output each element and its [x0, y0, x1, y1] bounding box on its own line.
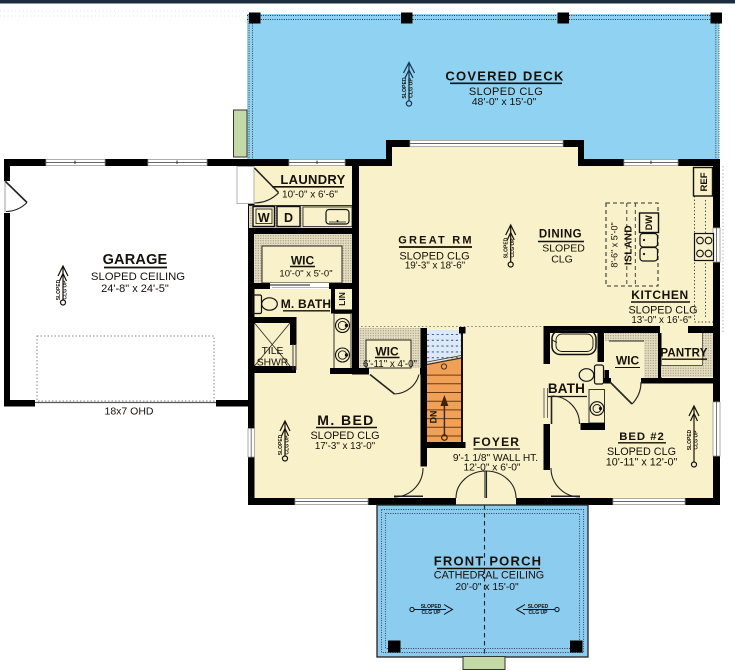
svg-text:REF: REF — [699, 172, 710, 191]
svg-text:M. BATH: M. BATH — [281, 297, 332, 311]
svg-text:10'-0" x 5'-0": 10'-0" x 5'-0" — [279, 269, 332, 280]
svg-text:WIC: WIC — [375, 345, 399, 359]
svg-text:CLG UP: CLG UP — [409, 78, 415, 98]
svg-text:CLG UP: CLG UP — [529, 610, 549, 616]
svg-text:WIC: WIC — [291, 254, 315, 268]
svg-text:COVERED DECK: COVERED DECK — [445, 69, 564, 84]
svg-text:17'-3" x 13'-0": 17'-3" x 13'-0" — [315, 441, 376, 452]
svg-text:TILE: TILE — [262, 346, 284, 357]
svg-text:13'-0" x 16'-6": 13'-0" x 16'-6" — [631, 315, 692, 326]
svg-text:CLG UP: CLG UP — [694, 430, 700, 450]
svg-text:M. BED: M. BED — [317, 412, 374, 428]
svg-text:19'-3" x 18'-6": 19'-3" x 18'-6" — [405, 261, 466, 272]
svg-text:W: W — [258, 211, 270, 225]
svg-text:SLOPED: SLOPED — [278, 434, 284, 455]
svg-text:SLOPED CEILING: SLOPED CEILING — [91, 271, 185, 283]
svg-text:FOYER: FOYER — [473, 435, 520, 449]
svg-text:SLOPED: SLOPED — [687, 429, 693, 450]
svg-text:CLG UP: CLG UP — [510, 238, 516, 258]
svg-text:WIC: WIC — [616, 354, 640, 368]
svg-text:KITCHEN: KITCHEN — [631, 288, 689, 302]
svg-text:DINING: DINING — [539, 229, 582, 241]
svg-text:8'-6" x 5'-0": 8'-6" x 5'-0" — [610, 222, 620, 267]
svg-text:18x7 OHD: 18x7 OHD — [104, 406, 153, 418]
svg-text:24'-8" x 24'-5": 24'-8" x 24'-5" — [101, 283, 169, 295]
svg-text:FRONT PORCH: FRONT PORCH — [434, 554, 543, 569]
svg-text:10'-11" x 12'-0": 10'-11" x 12'-0" — [606, 457, 678, 469]
svg-text:SLOPED: SLOPED — [402, 77, 408, 99]
svg-text:ISLAND: ISLAND — [624, 225, 635, 265]
svg-text:GARAGE: GARAGE — [103, 252, 168, 268]
svg-text:10'-0" x 6'-6": 10'-0" x 6'-6" — [282, 190, 338, 201]
svg-text:GREAT RM: GREAT RM — [398, 235, 473, 247]
svg-text:SLOPED: SLOPED — [56, 279, 62, 300]
svg-text:CLG UP: CLG UP — [63, 280, 69, 300]
svg-text:LIN: LIN — [337, 292, 347, 306]
svg-text:SHWR: SHWR — [257, 358, 288, 369]
svg-text:SLOPED: SLOPED — [504, 237, 510, 258]
svg-text:6'-11" x 4'-0": 6'-11" x 4'-0" — [363, 359, 418, 370]
svg-text:DN: DN — [429, 411, 439, 424]
svg-text:LAUNDRY: LAUNDRY — [280, 172, 345, 187]
svg-text:CLG UP: CLG UP — [422, 610, 442, 616]
svg-text:BED #2: BED #2 — [619, 431, 665, 443]
svg-text:20'-0" x 15'-0": 20'-0" x 15'-0" — [455, 582, 519, 593]
svg-text:D: D — [284, 211, 293, 225]
svg-text:CATHEDRAL CEILING: CATHEDRAL CEILING — [434, 570, 544, 582]
svg-text:48'-0" x 15'-0": 48'-0" x 15'-0" — [472, 96, 537, 108]
svg-text:CLG: CLG — [551, 254, 573, 266]
svg-text:PANTRY: PANTRY — [660, 348, 707, 360]
svg-text:DW: DW — [644, 215, 654, 230]
svg-text:BATH: BATH — [548, 381, 585, 396]
svg-text:CLG UP: CLG UP — [285, 435, 291, 455]
